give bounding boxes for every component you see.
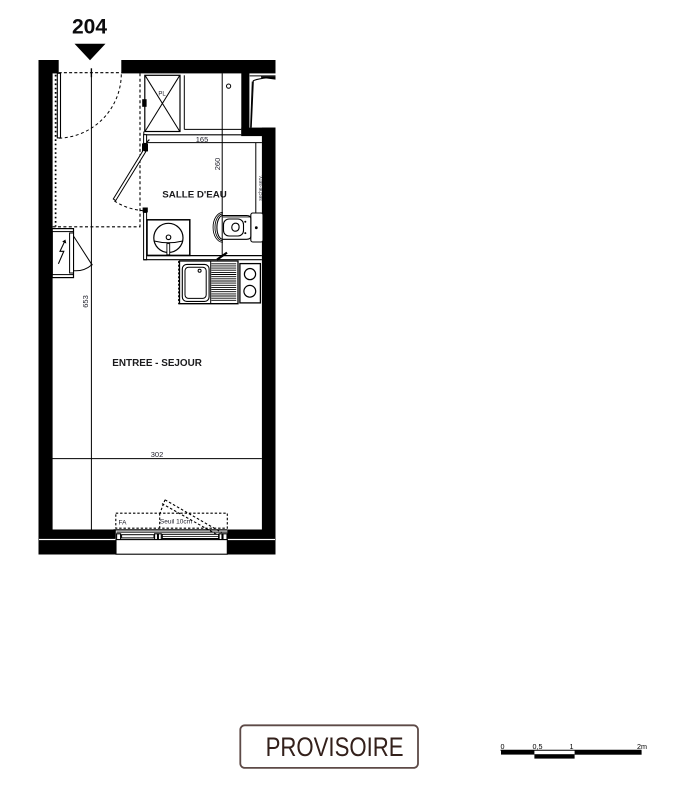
svg-text:seche-serv.: seche-serv. [258,175,264,200]
svg-text:204: 204 [72,16,107,39]
svg-text:260: 260 [213,158,222,171]
svg-text:1: 1 [570,742,574,751]
svg-text:2m: 2m [637,742,647,751]
svg-text:PL: PL [158,92,166,98]
svg-text:ENTREE - SEJOUR: ENTREE - SEJOUR [112,358,202,369]
svg-text:Seuil 10cm: Seuil 10cm [160,518,192,525]
svg-text:0: 0 [501,742,505,751]
svg-text:SALLE D'EAU: SALLE D'EAU [162,190,227,201]
svg-text:165: 165 [196,135,209,144]
svg-text:FA: FA [119,520,128,527]
svg-text:653: 653 [81,295,90,308]
svg-text:302: 302 [151,450,164,459]
svg-text:PROVISOIRE: PROVISOIRE [266,732,404,762]
svg-text:0,5: 0,5 [533,742,543,751]
